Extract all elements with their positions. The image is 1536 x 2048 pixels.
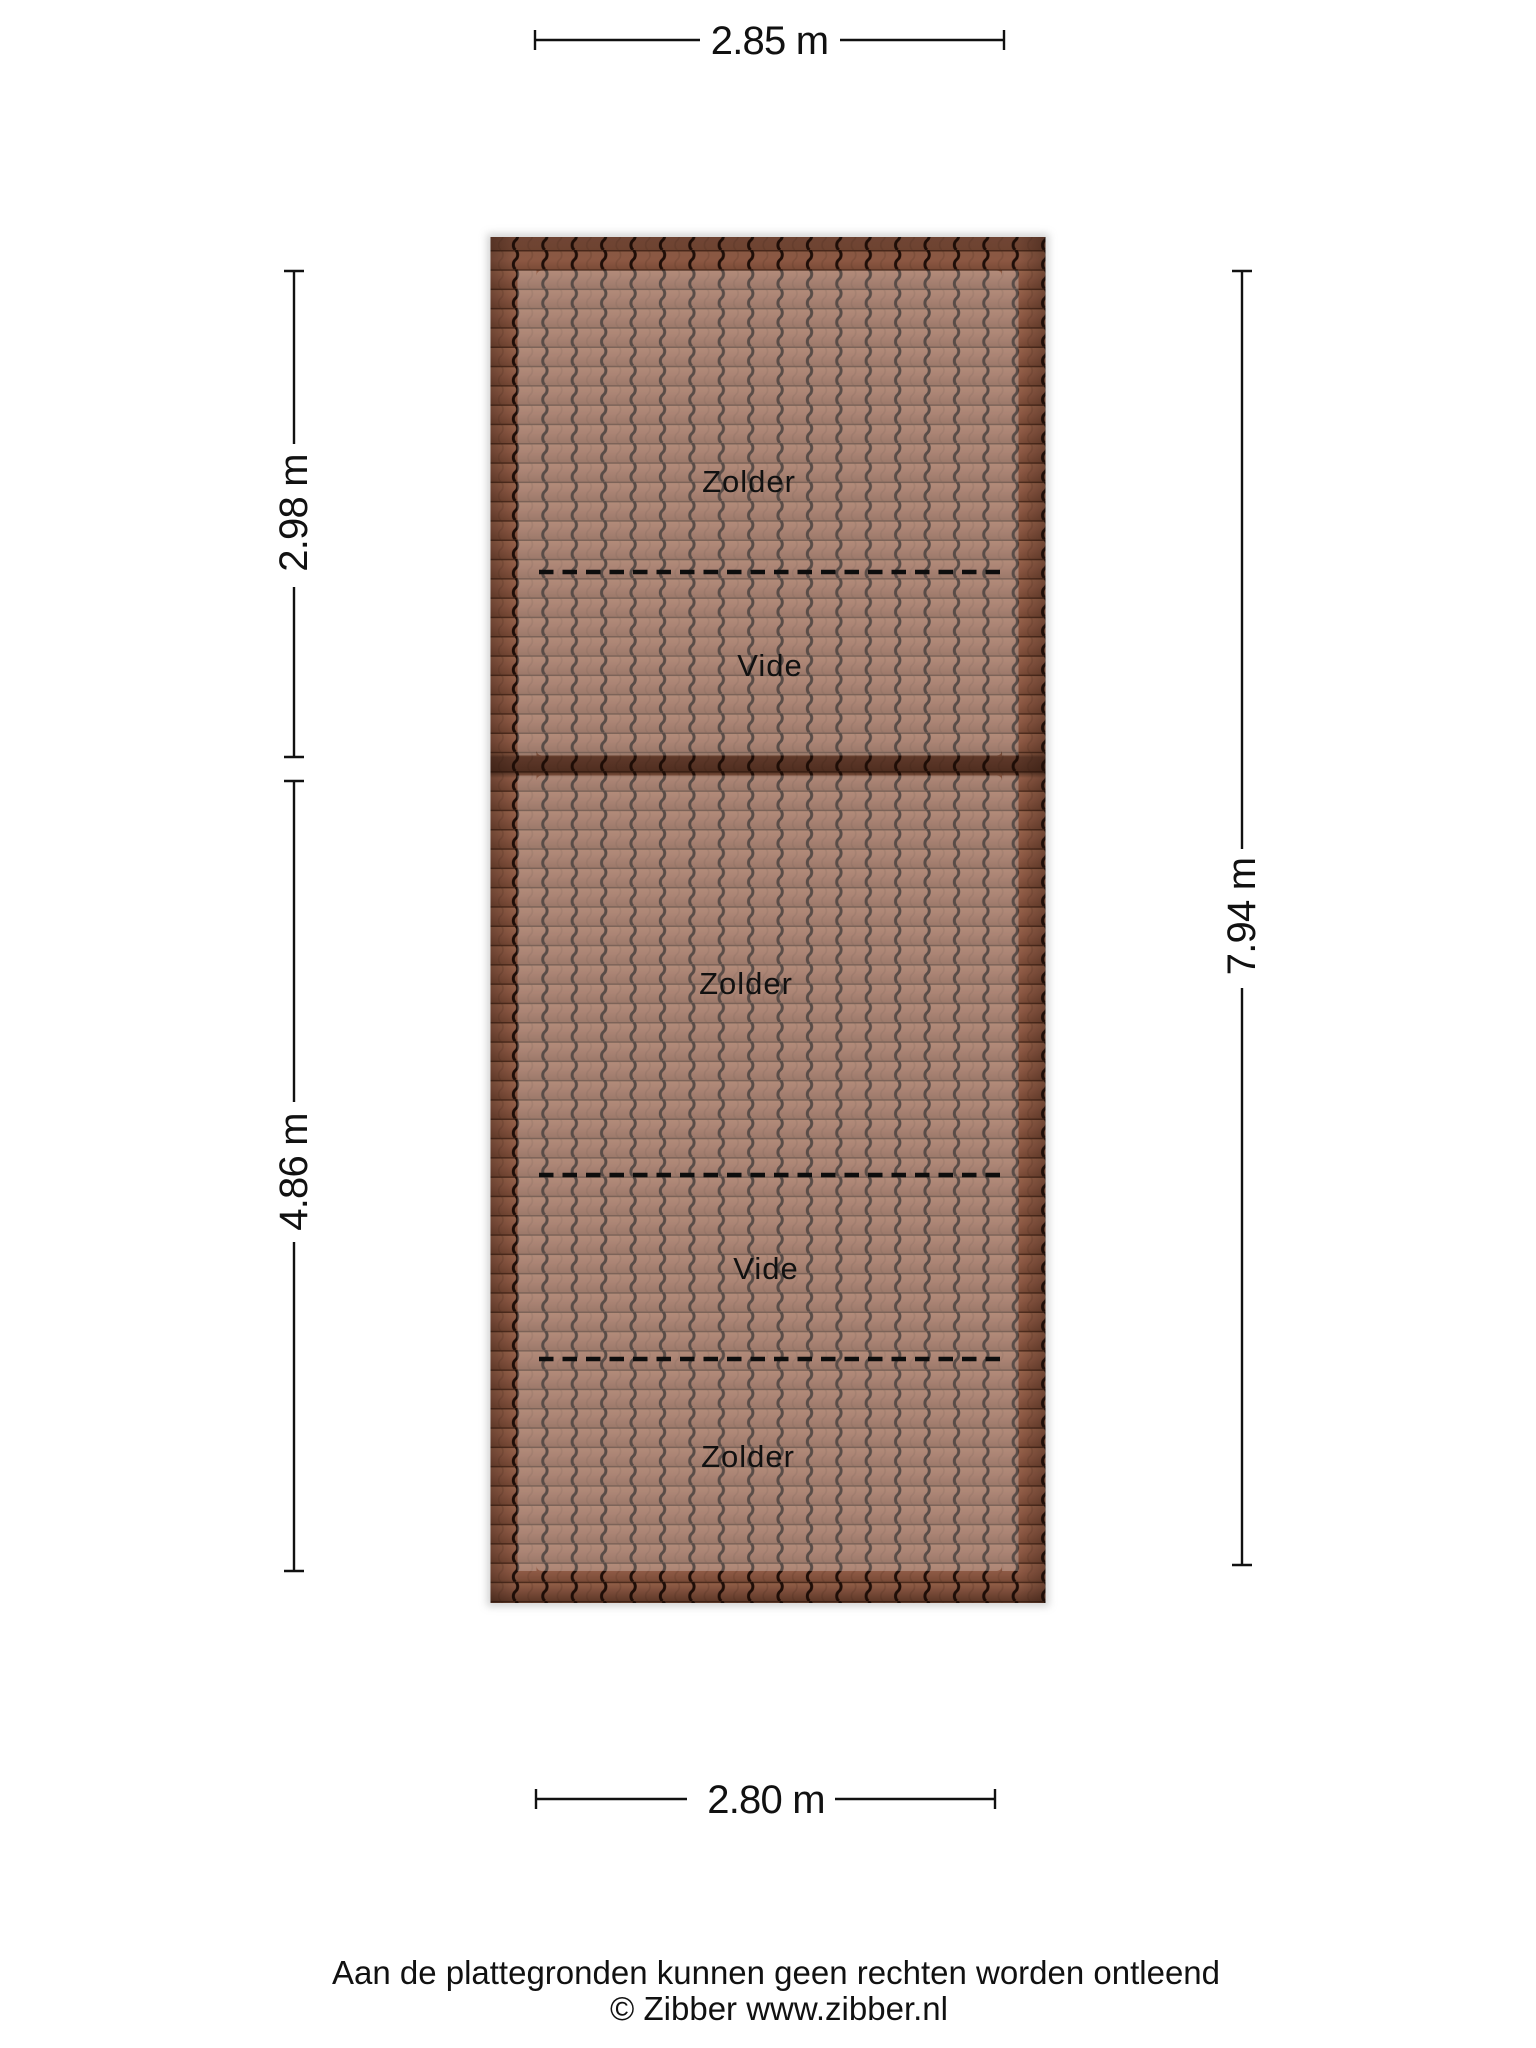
svg-text:Vide: Vide	[737, 648, 803, 683]
svg-text:7.94 m: 7.94 m	[1220, 858, 1264, 976]
svg-text:2.98 m: 2.98 m	[272, 454, 316, 572]
svg-text:Vide: Vide	[733, 1251, 799, 1286]
svg-text:Zolder: Zolder	[699, 966, 793, 1001]
svg-text:4.86 m: 4.86 m	[272, 1113, 316, 1231]
svg-text:© Zibber www.zibber.nl: © Zibber www.zibber.nl	[610, 1990, 948, 2027]
svg-text:2.80 m: 2.80 m	[707, 1778, 825, 1822]
svg-text:Zolder: Zolder	[701, 1439, 795, 1474]
svg-text:Zolder: Zolder	[702, 464, 796, 499]
svg-text:2.85 m: 2.85 m	[711, 19, 829, 63]
svg-text:Aan de plattegronden kunnen ge: Aan de plattegronden kunnen geen rechten…	[332, 1954, 1220, 1991]
